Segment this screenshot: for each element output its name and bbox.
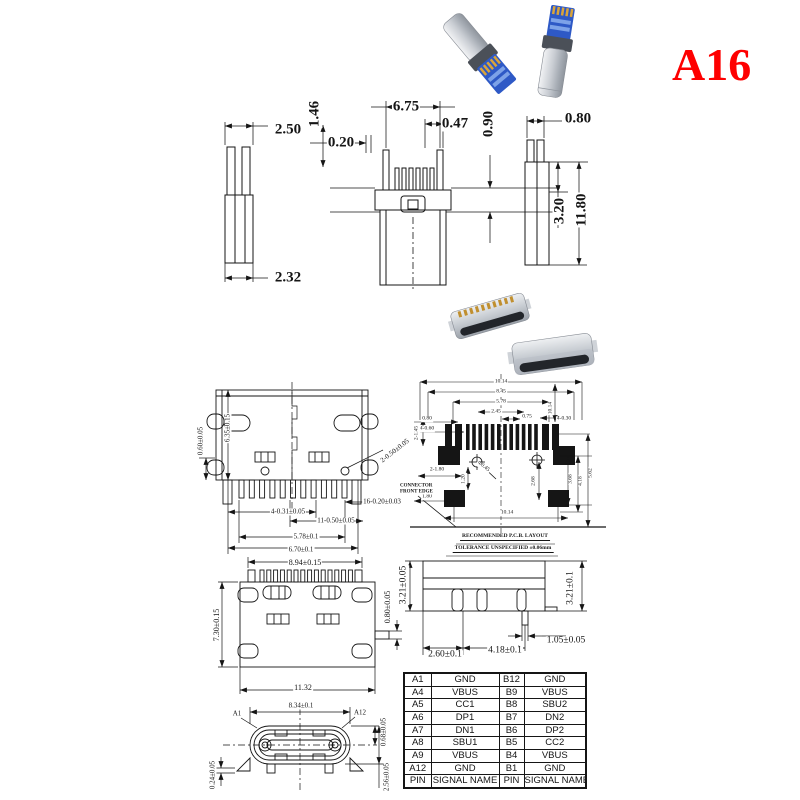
dim-label: 11.32 — [293, 684, 313, 692]
dim-label: 2.50 — [274, 123, 302, 138]
dim-label: 11.80 — [575, 193, 590, 228]
dim-label: 1.05±0.05 — [546, 636, 586, 646]
dim-label: 8.45 — [495, 389, 507, 395]
dim-label: 4.18 — [578, 475, 584, 487]
dim-label: 6.70±0.1 — [288, 547, 315, 554]
receptacle-front-view-drawing — [205, 552, 405, 702]
dim-label: 1.80 — [421, 494, 433, 500]
dim-label: 0.80 — [421, 416, 433, 422]
dim-label: 10.14 — [500, 510, 514, 516]
dim-label: 5.78±0.1 — [293, 534, 320, 541]
pin-table-cell: B1 — [499, 762, 524, 775]
pin-table-cell: VBUS — [431, 749, 499, 762]
dim-label: 1.46 — [308, 100, 323, 128]
dim-label: 4-0.30 — [556, 416, 572, 422]
pin-table-cell: B5 — [499, 737, 524, 750]
dim-label: 10.14 — [548, 401, 554, 415]
pin-table-cell: A12 — [404, 762, 431, 775]
usb-plug-photo — [438, 0, 608, 100]
plug-photo-left — [439, 9, 519, 96]
pin-table-cell: A6 — [404, 712, 431, 725]
pin-table-row: PINSIGNAL NAMEPINSIGNAL NAME — [404, 775, 586, 788]
dim-label: 4-0.60 — [419, 426, 435, 432]
pin-a1-label: A1 — [232, 711, 243, 718]
dim-label: 2.45 — [490, 409, 502, 415]
dim-label: 5.78 — [495, 399, 507, 405]
pin-table-cell: DP1 — [431, 712, 499, 725]
plug-views-drawing — [190, 95, 620, 290]
receptacle-photo-right — [506, 332, 600, 376]
pin-table-row: A4VBUSB9VBUS — [404, 686, 586, 699]
dim-label: 11-0.50±0.05 — [316, 518, 355, 525]
dim-label: 0.90 — [482, 110, 497, 138]
dim-label: 6.35±0.15 — [225, 413, 232, 443]
pcb-edge-note: CONNECTOR FRONT EDGE — [400, 484, 442, 495]
pin-table-row: A6DP1B7DN2 — [404, 712, 586, 725]
pin-table-cell: PIN — [499, 775, 524, 788]
pin-table-cell: SIGNAL NAME — [431, 775, 499, 788]
pin-table-cell: VBUS — [431, 686, 499, 699]
pin-table-cell: A5 — [404, 699, 431, 712]
pin-table-cell: DN2 — [524, 712, 586, 725]
dim-label: 2-1.45 — [414, 425, 420, 441]
pin-table-cell: CC2 — [524, 737, 586, 750]
dim-label: 16-0.20±0.03 — [362, 499, 402, 506]
pin-table-cell: VBUS — [524, 686, 586, 699]
pin-table-cell: VBUS — [524, 749, 586, 762]
engineering-drawing-sheet: A16 — [0, 0, 800, 800]
pin-table-cell: DP2 — [524, 724, 586, 737]
pin-table-cell: DN1 — [431, 724, 499, 737]
pin-table-cell: A7 — [404, 724, 431, 737]
pin-a12-label: A12 — [353, 710, 367, 717]
pcb-note-title: RECOMMENDED P.C.B. LAYOUT — [460, 533, 550, 541]
pin-table-cell: B7 — [499, 712, 524, 725]
pin-table-cell: A1 — [404, 673, 431, 686]
pin-table-cell: SBU1 — [431, 737, 499, 750]
pin-table-row: A9VBUSB4VBUS — [404, 749, 586, 762]
pin-table-cell: SBU2 — [524, 699, 586, 712]
pin-table-cell: B9 — [499, 686, 524, 699]
dim-label: 3.20 — [553, 197, 568, 225]
pin-table-cell: GND — [524, 762, 586, 775]
dim-label: 0.60±0.05 — [198, 426, 205, 456]
pin-table-body: A1GNDB12GNDA4VBUSB9VBUSA5CC1B8SBU2A6DP1B… — [404, 673, 586, 788]
pin-table-cell: PIN — [404, 775, 431, 788]
pin-table-cell: B12 — [499, 673, 524, 686]
pin-table-cell: A8 — [404, 737, 431, 750]
dim-label: 4-0.31±0.05 — [270, 509, 306, 516]
dim-label: 2.68 — [531, 475, 537, 487]
model-badge: A16 — [672, 42, 751, 88]
pcb-note-tolerance: TOLERANCE UNSPECIFIED ±0.06mm — [453, 545, 554, 553]
dim-label: 5.62 — [588, 467, 594, 479]
dim-label: 0.80 — [564, 112, 592, 127]
receptacle-photo-left — [446, 291, 534, 341]
pin-table-row: A12GNDB1GND — [404, 762, 586, 775]
plug-photo-right — [534, 4, 578, 99]
pin-table-cell: SIGNAL NAME — [524, 775, 586, 788]
dim-label: 2.32 — [274, 271, 302, 286]
dim-label: 3.21±0.05 — [399, 565, 409, 605]
pin-table-row: A8SBU1B5CC2 — [404, 737, 586, 750]
dim-label: 0.80±0.05 — [384, 590, 392, 624]
dim-label: 6.75 — [392, 100, 420, 115]
pin-table-cell: GND — [431, 673, 499, 686]
pin-table-row: A5CC1B8SBU2 — [404, 699, 586, 712]
pin-table-row: A1GNDB12GND — [404, 673, 586, 686]
dim-label: 0.20 — [327, 136, 355, 151]
dim-label: 1.20 — [461, 473, 467, 485]
pin-table-row: A7DN1B6DP2 — [404, 724, 586, 737]
dim-label: 7.30±0.15 — [213, 608, 221, 642]
pin-table-cell: B6 — [499, 724, 524, 737]
dim-label: 3.21±0.1 — [566, 570, 576, 606]
pin-table-cell: A4 — [404, 686, 431, 699]
pin-table-cell: GND — [431, 762, 499, 775]
dim-label: 0.68±0.05 — [381, 717, 388, 747]
pin-assignment-table: A1GNDB12GNDA4VBUSB9VBUSA5CC1B8SBU2A6DP1B… — [403, 672, 587, 789]
pin-table-cell: B4 — [499, 749, 524, 762]
dim-label: 0.24±0.05 — [210, 760, 217, 790]
dim-label: 8.34±0.1 — [288, 703, 315, 710]
pin-table-cell: B8 — [499, 699, 524, 712]
pin-table-cell: A9 — [404, 749, 431, 762]
dim-label: 2.60±0.1 — [427, 650, 463, 660]
dim-label: 4.18±0.1 — [487, 646, 523, 656]
dim-label: 0.47 — [441, 117, 469, 132]
dim-label: 0.75 — [521, 414, 533, 420]
pin-table-cell: CC1 — [431, 699, 499, 712]
dim-label: 10.14 — [494, 379, 508, 385]
dim-label: 8.94±0.15 — [288, 559, 322, 567]
dim-label: 3.68 — [568, 473, 574, 485]
dim-label: 2.56±0.05 — [384, 762, 391, 792]
dim-label: 2-1.80 — [429, 467, 445, 473]
pin-table-cell: GND — [524, 673, 586, 686]
